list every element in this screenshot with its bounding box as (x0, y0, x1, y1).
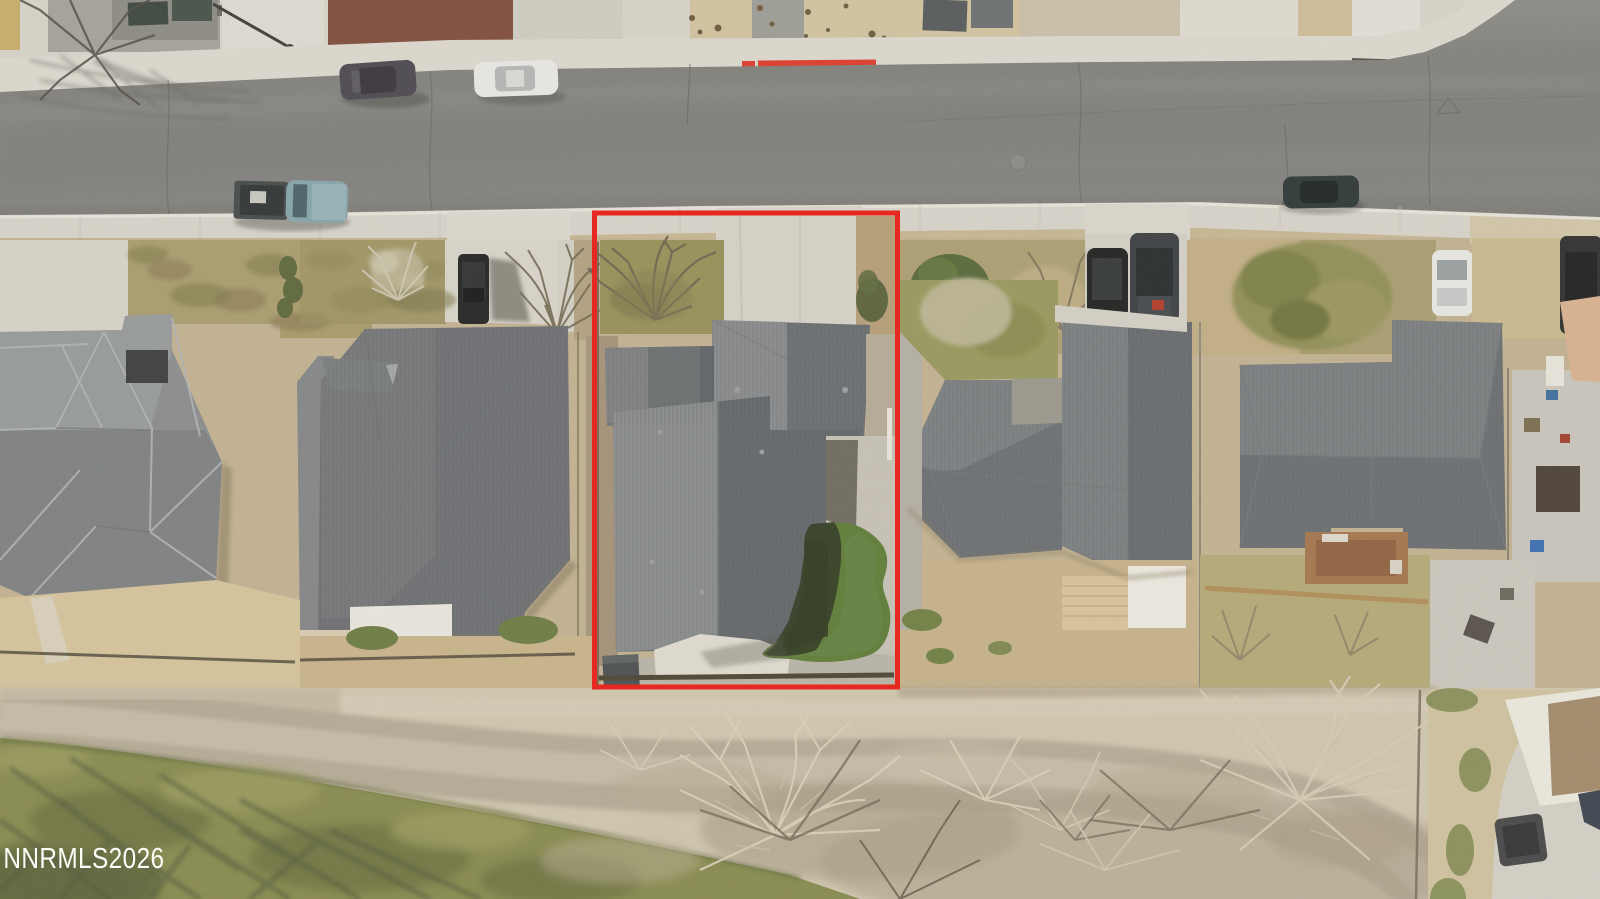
svg-text:NNRMLS2026: NNRMLS2026 (3, 842, 164, 874)
